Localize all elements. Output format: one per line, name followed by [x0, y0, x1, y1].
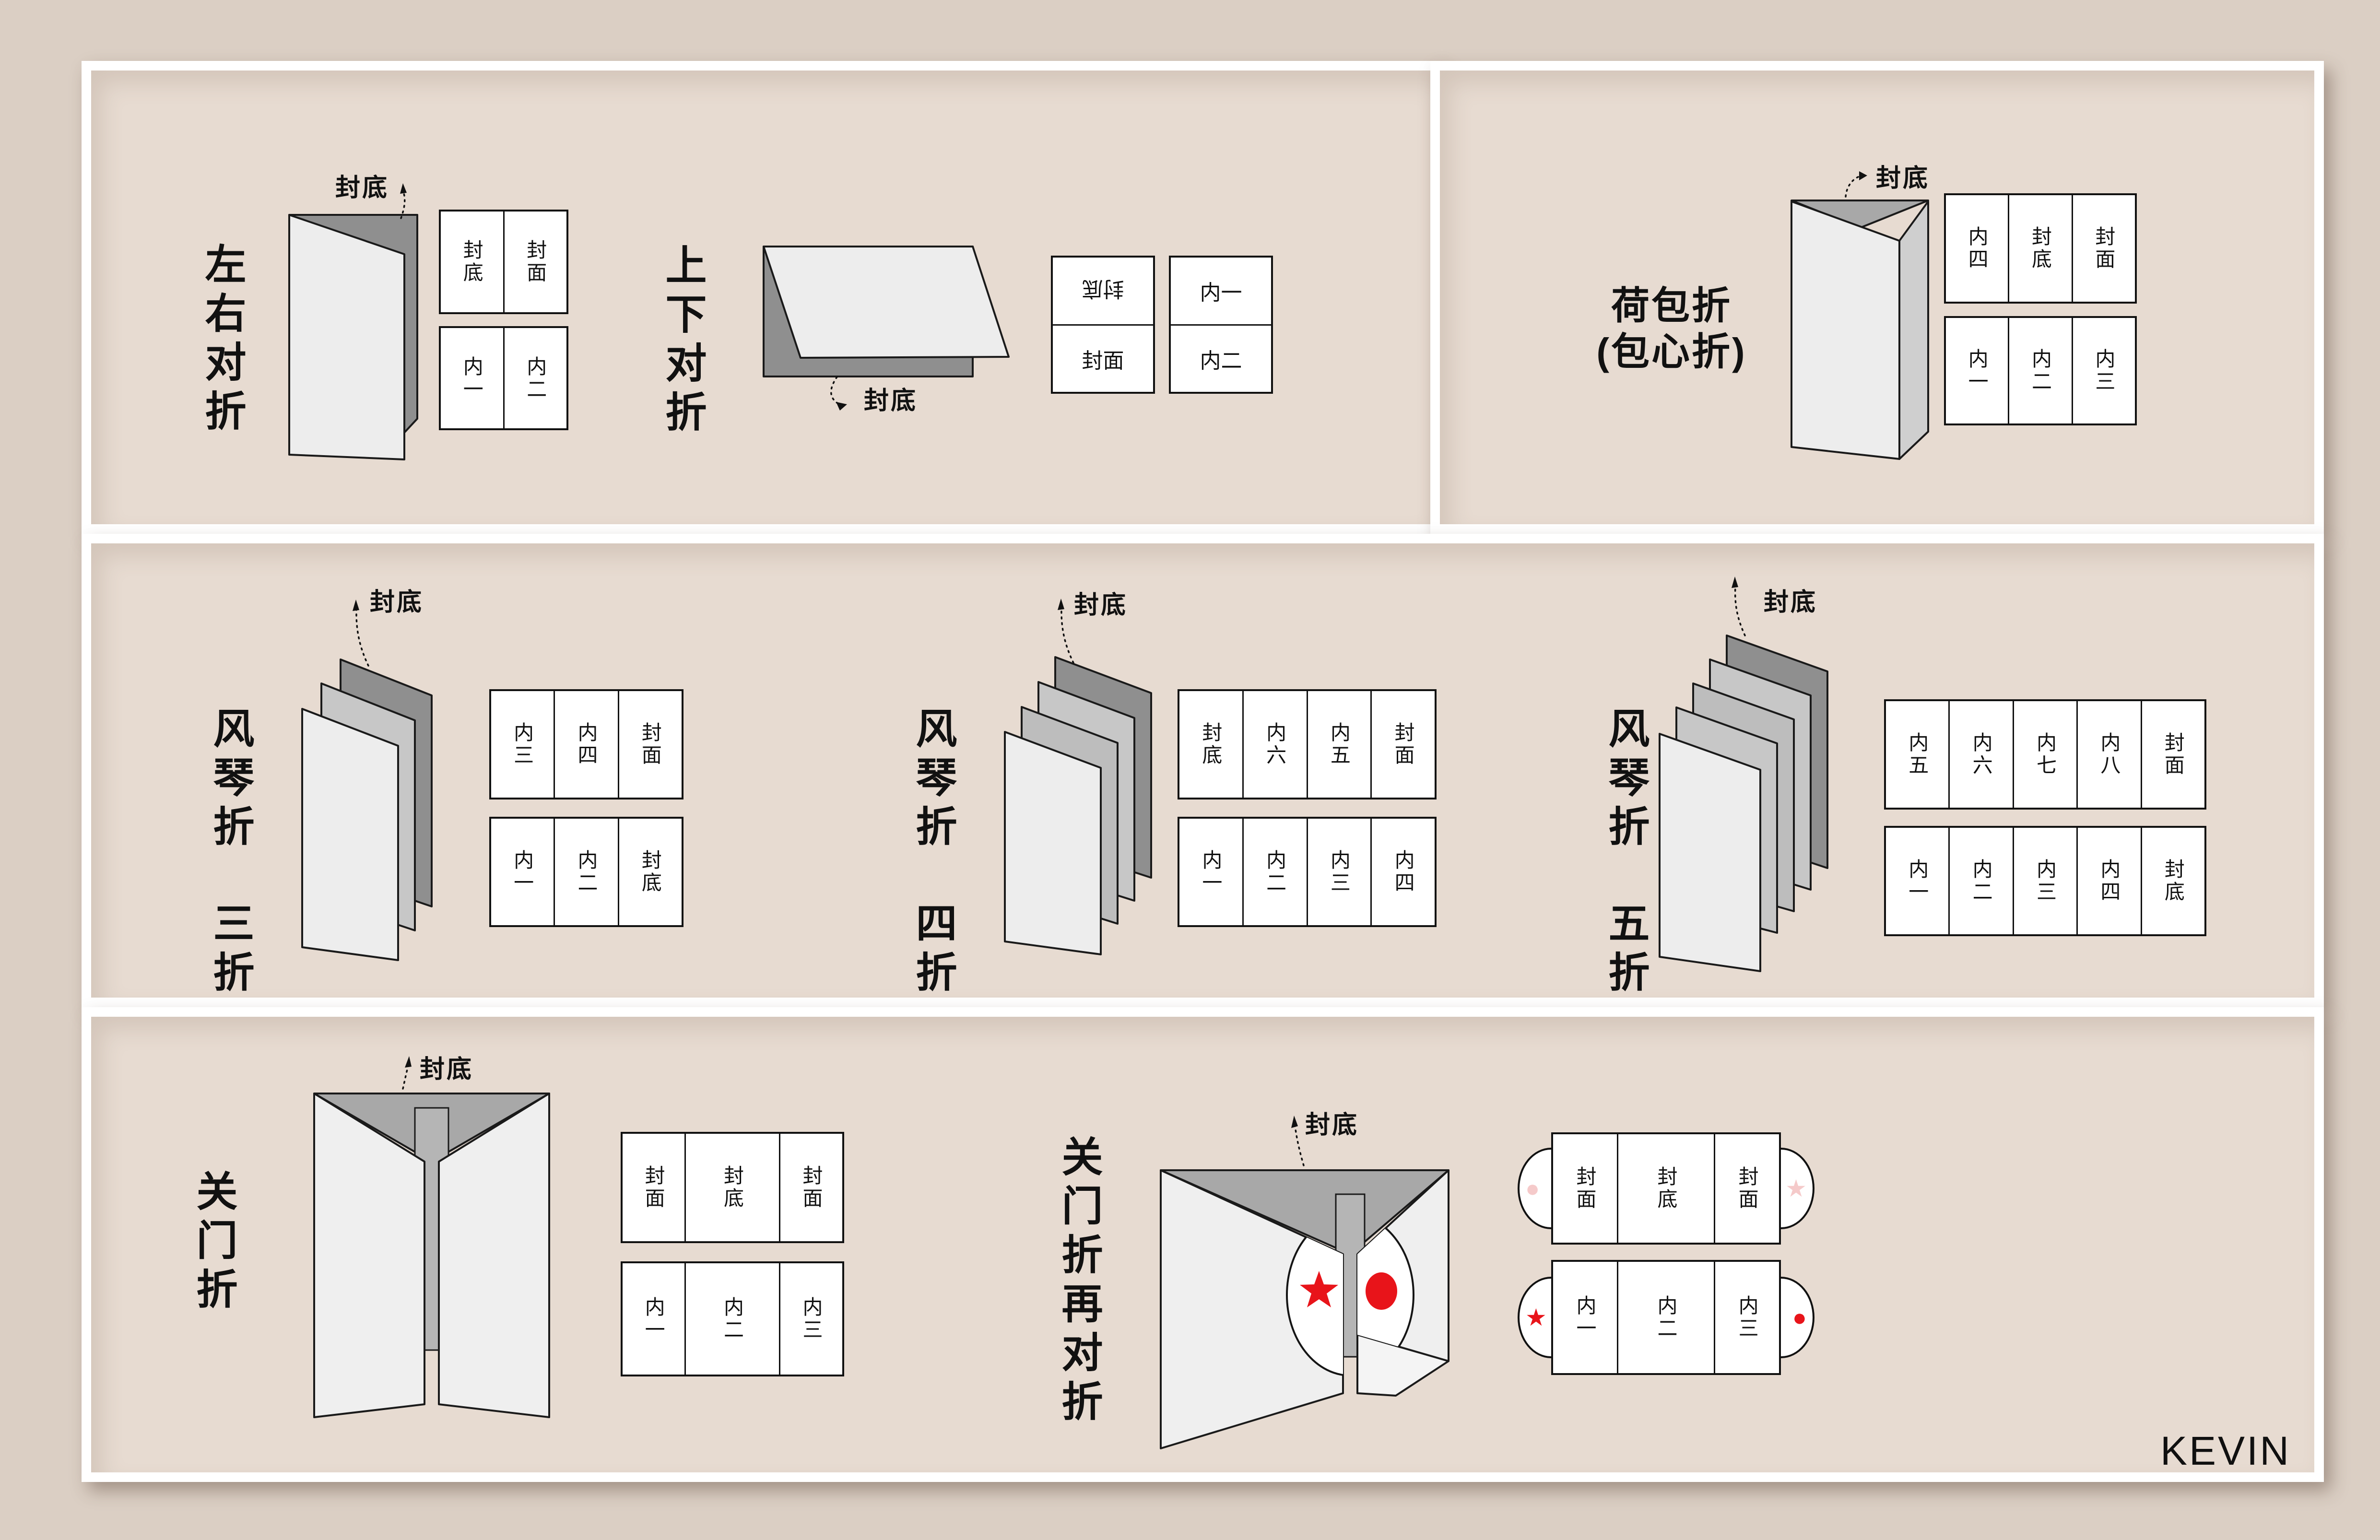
fold-illustration-top-bottom [748, 225, 1026, 427]
fold-illustration-accordion4 [998, 590, 1199, 974]
fold-arrow [831, 377, 838, 404]
fold-arrowhead [405, 1056, 412, 1068]
grid-cell: 内一 [491, 819, 554, 925]
grid-cell: 封底 [684, 1134, 779, 1241]
fold-illustration-gate [307, 1036, 556, 1420]
fold-arrowhead [836, 402, 847, 411]
grid-cell: 内一 [1946, 318, 2008, 423]
grid-cell: 内二 [503, 328, 567, 428]
paper-front [302, 709, 398, 960]
section-title-accordion3-line2: 三折 [206, 898, 254, 1003]
grid-cell: 内二 [684, 1263, 779, 1375]
grid-cell: 封底 [441, 212, 503, 312]
star-icon: ★ [1525, 1305, 1547, 1329]
layout-grid: 内四 封底 封面 [1944, 193, 2137, 304]
grid-cell: 内三 [491, 691, 554, 798]
star-icon: ★ [1785, 1176, 1807, 1200]
paper-front [1005, 732, 1101, 954]
grid-cell: 内二 [1617, 1262, 1714, 1373]
fold-illustration-wallet [1775, 163, 1938, 470]
dot-icon [1366, 1272, 1397, 1310]
grid-cell: 封面 [779, 1134, 842, 1241]
dot-icon: ● [1525, 1176, 1540, 1200]
fold-arrowhead [1732, 576, 1738, 588]
layout-grid: 内一 内二 内三 [621, 1261, 844, 1376]
layout-grid: 内一 内二 内三 [1944, 316, 2137, 425]
grid-cell: 内一 [1886, 828, 1948, 934]
fold-arrow [1061, 608, 1073, 663]
paper-front [764, 247, 1009, 358]
grid-cell: 封面 [503, 212, 567, 312]
layout-grid: 内三 内四 封面 [489, 689, 683, 799]
grid-cell: 封面 [2141, 701, 2204, 808]
grid-cell: 内五 [1307, 691, 1371, 798]
grid-cell: 封面 [623, 1134, 684, 1241]
grid-cell: 封面 [1370, 691, 1435, 798]
section-title-top-bottom-fold: 上下对折 [658, 236, 706, 447]
grid-cell: 内二 [1948, 828, 2012, 934]
fold-illustration-gate-half [1151, 1070, 1487, 1477]
grid-cell: 内二 [1171, 324, 1271, 392]
grid-cell: 封底 [1617, 1134, 1714, 1243]
grid-cell: 内三 [1307, 819, 1371, 925]
grid-cell: 内一 [1171, 258, 1271, 324]
grid-cell: 内四 [1946, 195, 2008, 302]
fold-illustration-accordion5 [1655, 571, 1875, 993]
paper-back [1899, 201, 1928, 459]
section-title-accordion4-line1: 风琴折 [908, 701, 956, 859]
grid-cell: 封底 [2141, 828, 2204, 934]
fold-arrowhead [400, 183, 407, 194]
grid-cell: 内三 [1714, 1262, 1779, 1373]
grid-cell: 内六 [1242, 691, 1307, 798]
layout-grid: 内一 内二 封底 [489, 817, 683, 927]
paper-front [1791, 201, 1899, 459]
grid-cell: 内一 [1179, 819, 1242, 925]
grid-cell: 封面 [1714, 1134, 1779, 1243]
layout-grid: 封底 内六 内五 封面 [1178, 689, 1437, 799]
grid-cell: 封面 [1053, 324, 1153, 392]
fold-arrow [356, 609, 368, 666]
grid-cell: 封底 [2008, 195, 2071, 302]
fold-arrow [1846, 176, 1859, 197]
dot-icon: ● [1792, 1305, 1807, 1329]
paper-front [289, 215, 404, 459]
grid-cell: 封底 [1179, 691, 1242, 798]
fold-arrowhead [1058, 599, 1064, 610]
fold-arrow [403, 1066, 408, 1089]
section-title-wallet-fold-line1: 荷包折 [1568, 284, 1775, 328]
grid-cell: 封面 [2072, 195, 2135, 302]
layout-grid: 内五 内六 内七 内八 封面 [1884, 699, 2206, 810]
section-title-accordion5-line1: 风琴折 [1601, 701, 1649, 859]
fold-illustration-left-right [269, 173, 432, 465]
grid-cell: 内一 [1553, 1262, 1617, 1373]
grid-cell: 内二 [2008, 318, 2071, 423]
layout-grid: 内一 内二 内三 [1551, 1260, 1781, 1375]
layout-grid: 封面 封底 封面 [621, 1132, 844, 1243]
grid-cell: 内二 [554, 819, 617, 925]
layout-grid: 封底 封面 [439, 210, 568, 314]
grid-cell: 内一 [441, 328, 503, 428]
layout-grid: 封底 封面 [1051, 256, 1155, 394]
fold-arrowhead [1859, 171, 1867, 180]
grid-cell: 内四 [554, 691, 617, 798]
grid-cell: 内四 [2076, 828, 2140, 934]
fold-arrowhead [353, 600, 359, 611]
grid-cell: 内二 [1242, 819, 1307, 925]
layout-grid: 内一 内二 内三 内四 [1178, 817, 1437, 927]
grid-cell: 内三 [2013, 828, 2076, 934]
section-title-gate-plus-half-fold: 关门折再对折 [1054, 1126, 1102, 1438]
grid-cell: 封底 [618, 819, 682, 925]
grid-cell: 内三 [2072, 318, 2135, 423]
grid-cell: 内七 [2013, 701, 2076, 808]
credit-signature: KEVIN [2144, 1429, 2307, 1472]
section-title-wallet-fold-line2: (包心折) [1568, 330, 1775, 374]
fold-arrow [1295, 1126, 1304, 1165]
grid-cell: 内六 [1948, 701, 2012, 808]
layout-grid: 内一 内二 内三 内四 封底 [1884, 826, 2206, 936]
grid-cell: 内五 [1886, 701, 1948, 808]
grid-cell: 封面 [1553, 1134, 1617, 1243]
section-title-gate-fold: 关门折 [189, 1147, 237, 1339]
grid-cell: 内一 [623, 1263, 684, 1375]
paper-front [1660, 734, 1760, 971]
grid-cell: 封面 [618, 691, 682, 798]
poster: 左右对折 封底 封面 封底 封面 内一 内二 上下对折 封底 封面 封底 封面 … [0, 0, 2380, 1540]
layout-grid: 内一 内二 [439, 326, 568, 430]
fold-arrowhead [1291, 1116, 1298, 1128]
grid-cell: 内四 [1370, 819, 1435, 925]
layout-grid: 封面 封底 封面 [1551, 1132, 1781, 1245]
grid-cell: 内八 [2076, 701, 2140, 808]
layout-grid: 内一 内二 [1169, 256, 1273, 394]
section-title-accordion5-line2: 五折 [1601, 898, 1649, 1003]
section-title-accordion3-line1: 风琴折 [206, 701, 254, 859]
section-title-accordion4-line2: 四折 [908, 898, 956, 1003]
grid-cell: 封底 [1053, 258, 1153, 324]
fold-illustration-accordion3 [288, 590, 480, 974]
fold-arrow [1735, 586, 1745, 635]
section-title-left-right-fold: 左右对折 [198, 240, 246, 441]
grid-cell: 内三 [779, 1263, 842, 1375]
